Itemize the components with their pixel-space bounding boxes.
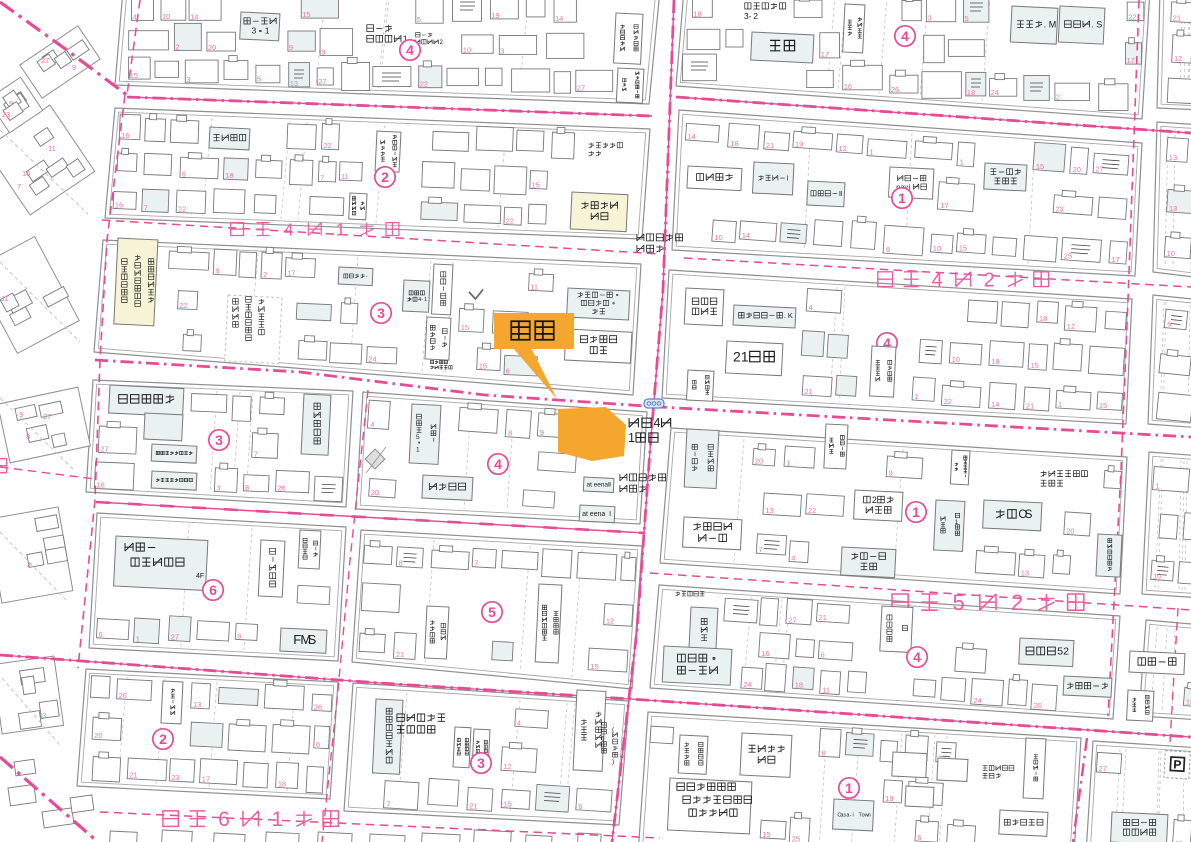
svg-text:22: 22 (420, 80, 428, 89)
svg-text:10: 10 (463, 45, 471, 54)
svg-text:20: 20 (208, 43, 216, 52)
svg-text:S: S (308, 632, 317, 647)
svg-text:16: 16 (761, 649, 769, 658)
svg-text:1: 1 (336, 219, 346, 239)
svg-text:18: 18 (278, 779, 286, 788)
svg-text:S: S (1025, 509, 1033, 521)
svg-text:24: 24 (991, 88, 999, 97)
svg-text:22: 22 (944, 397, 952, 406)
svg-text:15: 15 (762, 830, 770, 839)
svg-text:18: 18 (693, 9, 701, 18)
svg-text:1: 1 (898, 190, 906, 206)
svg-text:-: - (366, 274, 368, 280)
svg-text:27: 27 (1099, 764, 1107, 773)
svg-text:14: 14 (555, 14, 563, 23)
svg-text:9: 9 (289, 43, 293, 52)
svg-text:5: 5 (965, 14, 969, 23)
svg-text:2: 2 (1011, 590, 1023, 615)
svg-text:i: i (853, 812, 854, 818)
svg-text:27: 27 (43, 412, 51, 421)
svg-text:7: 7 (474, 559, 478, 568)
svg-text:3: 3 (252, 26, 257, 36)
svg-text:I: I (786, 175, 788, 182)
svg-text:22: 22 (178, 204, 186, 213)
svg-text:6: 6 (886, 245, 890, 254)
svg-text:21: 21 (819, 613, 827, 622)
svg-text:27: 27 (789, 615, 797, 624)
svg-text:7: 7 (144, 204, 148, 213)
svg-text:9: 9 (215, 266, 219, 275)
svg-text:20: 20 (1073, 165, 1081, 174)
svg-text:8: 8 (508, 429, 512, 438)
svg-text:1: 1 (416, 446, 420, 453)
svg-text:10: 10 (933, 244, 941, 253)
svg-text:23: 23 (1055, 204, 1063, 213)
svg-text:11: 11 (822, 685, 830, 694)
svg-text:1: 1 (741, 349, 749, 365)
svg-text:27: 27 (171, 632, 179, 641)
svg-text:22: 22 (808, 506, 816, 515)
svg-text:27: 27 (1095, 165, 1103, 174)
svg-text:12: 12 (839, 144, 847, 153)
svg-text:13: 13 (1169, 153, 1177, 162)
svg-text:10: 10 (1167, 249, 1175, 258)
svg-text:6: 6 (578, 802, 582, 811)
svg-text:27: 27 (318, 77, 326, 86)
svg-text:-: - (421, 297, 423, 303)
svg-text:17: 17 (940, 201, 948, 210)
svg-text:M: M (1049, 19, 1057, 29)
svg-text:P: P (1173, 757, 1182, 771)
svg-text:2: 2 (381, 169, 389, 185)
svg-text:3: 3 (215, 432, 223, 448)
svg-text:7: 7 (320, 173, 324, 182)
svg-text:6: 6 (237, 631, 241, 640)
svg-text:15: 15 (479, 362, 487, 371)
svg-text:1: 1 (912, 504, 920, 520)
svg-text:.: . (784, 311, 786, 320)
svg-text:-: - (749, 11, 752, 21)
svg-text:15: 15 (590, 662, 598, 671)
svg-text:16: 16 (97, 481, 105, 490)
svg-text:8: 8 (245, 483, 249, 492)
svg-text:4: 4 (517, 718, 521, 727)
svg-text:6: 6 (917, 833, 921, 842)
svg-text:1: 1 (786, 458, 790, 467)
svg-text:2: 2 (753, 11, 758, 21)
svg-text:13: 13 (1021, 568, 1029, 577)
svg-text:21: 21 (469, 802, 477, 811)
svg-text:6: 6 (209, 582, 217, 598)
svg-text:1: 1 (628, 431, 635, 445)
svg-text:13: 13 (193, 700, 201, 709)
svg-text:1: 1 (1058, 400, 1062, 409)
svg-text:21: 21 (1026, 402, 1034, 411)
svg-text:27: 27 (577, 83, 585, 92)
svg-text:.: . (1091, 19, 1094, 29)
svg-text:1: 1 (272, 808, 284, 831)
svg-text:18: 18 (967, 88, 975, 97)
svg-text:3: 3 (928, 14, 932, 23)
svg-text:20: 20 (1034, 701, 1042, 710)
svg-text:8: 8 (26, 432, 30, 441)
svg-text:1: 1 (845, 780, 853, 796)
svg-text:2: 2 (984, 269, 995, 291)
svg-text:6: 6 (218, 808, 230, 831)
svg-text:18: 18 (795, 680, 803, 689)
svg-text:3: 3 (216, 484, 220, 493)
svg-text:6: 6 (316, 740, 320, 749)
svg-text:1: 1 (136, 634, 140, 643)
svg-text:2: 2 (159, 731, 167, 747)
svg-text:15: 15 (461, 323, 469, 332)
svg-text:15: 15 (1031, 361, 1039, 370)
svg-text:4: 4 (406, 42, 414, 58)
svg-text:17: 17 (821, 50, 829, 59)
svg-text:.: . (1044, 19, 1047, 29)
svg-text:20: 20 (371, 488, 379, 497)
svg-text:1: 1 (869, 148, 873, 157)
svg-text:24: 24 (743, 680, 751, 689)
svg-text:22: 22 (324, 141, 332, 150)
svg-text:4: 4 (654, 416, 661, 430)
svg-text:12: 12 (1067, 322, 1075, 331)
svg-text:2: 2 (175, 42, 179, 51)
svg-text:1: 1 (960, 158, 964, 167)
svg-text:13: 13 (765, 506, 773, 515)
svg-text:27: 27 (41, 56, 49, 65)
svg-text:19: 19 (885, 794, 893, 803)
svg-text:12: 12 (1174, 54, 1182, 63)
svg-text:18: 18 (1039, 314, 1047, 323)
svg-text:7: 7 (17, 182, 21, 191)
svg-text:4F: 4F (196, 573, 204, 580)
svg-text:n: n (868, 812, 871, 818)
svg-text:7: 7 (759, 545, 763, 554)
svg-text:11: 11 (341, 172, 349, 181)
svg-text:14: 14 (688, 132, 696, 141)
svg-text:9: 9 (889, 469, 893, 478)
svg-text:4: 4 (494, 456, 502, 472)
svg-text:5: 5 (953, 590, 965, 615)
svg-text:9: 9 (321, 47, 325, 56)
svg-text:3: 3 (477, 755, 485, 771)
svg-text:9: 9 (72, 63, 76, 72)
svg-text:23: 23 (172, 773, 180, 782)
svg-text:15: 15 (532, 180, 540, 189)
svg-text:5: 5 (488, 604, 496, 620)
svg-text:-: - (850, 812, 852, 818)
svg-text:5: 5 (416, 434, 420, 441)
svg-text:2: 2 (263, 270, 267, 279)
svg-text:25: 25 (792, 834, 800, 842)
svg-text:19: 19 (491, 11, 499, 20)
svg-text:4: 4 (370, 420, 374, 429)
svg-text:10: 10 (952, 355, 960, 364)
svg-text:3: 3 (186, 75, 190, 84)
svg-text:1: 1 (265, 26, 270, 36)
svg-text:17: 17 (287, 268, 295, 277)
svg-text:21: 21 (1173, 14, 1181, 23)
svg-text:6: 6 (601, 736, 605, 743)
svg-text:10: 10 (22, 169, 30, 178)
svg-text:6: 6 (1167, 320, 1171, 329)
svg-text:10: 10 (1153, 571, 1161, 580)
svg-text:a: a (601, 511, 605, 518)
svg-text:4: 4 (913, 649, 921, 665)
svg-text:10: 10 (162, 12, 170, 21)
svg-text:17: 17 (202, 775, 210, 784)
svg-text:8: 8 (399, 559, 403, 568)
svg-text:21: 21 (804, 387, 812, 396)
svg-text:17: 17 (1112, 255, 1120, 264)
svg-text:t: t (590, 482, 592, 489)
svg-text:15: 15 (302, 10, 310, 19)
svg-text:18: 18 (991, 357, 999, 366)
svg-text:16: 16 (844, 82, 852, 91)
svg-text:26: 26 (119, 691, 127, 700)
svg-text:26: 26 (891, 85, 899, 94)
svg-text:4: 4 (932, 269, 943, 291)
svg-text:9: 9 (19, 410, 23, 419)
svg-text:14: 14 (742, 231, 750, 240)
svg-text:20: 20 (94, 731, 102, 740)
svg-text:27: 27 (100, 445, 108, 454)
svg-text:15: 15 (959, 244, 967, 253)
svg-text:4: 4 (901, 28, 909, 44)
svg-text:14: 14 (190, 12, 198, 21)
svg-text:21: 21 (396, 650, 404, 659)
svg-text:24: 24 (368, 355, 376, 364)
svg-text:Ⅱ: Ⅱ (608, 482, 611, 489)
svg-text:I: I (609, 511, 611, 518)
svg-text:1: 1 (424, 297, 427, 303)
svg-text:3: 3 (377, 305, 385, 321)
svg-text:12: 12 (606, 617, 614, 626)
svg-text:2: 2 (1063, 646, 1069, 658)
svg-text:Ⅱ: Ⅱ (839, 191, 842, 198)
svg-text:3: 3 (500, 46, 504, 55)
svg-text:5: 5 (417, 15, 421, 24)
svg-text:5: 5 (257, 75, 261, 84)
svg-text:11: 11 (48, 144, 56, 153)
svg-text:4: 4 (133, 12, 137, 21)
svg-text:19: 19 (1186, 698, 1191, 707)
svg-text:15: 15 (1099, 401, 1107, 410)
svg-text:23: 23 (2, 110, 10, 119)
svg-text:20: 20 (1066, 526, 1074, 535)
svg-text:12: 12 (503, 762, 511, 771)
svg-text:10: 10 (714, 233, 722, 242)
svg-text:19: 19 (795, 139, 803, 148)
svg-text:24: 24 (973, 696, 981, 705)
svg-text:8: 8 (822, 748, 826, 757)
svg-text:18: 18 (225, 171, 233, 180)
svg-text:6: 6 (182, 169, 186, 178)
svg-text:21: 21 (129, 771, 137, 780)
svg-text:22: 22 (179, 301, 187, 310)
svg-text:S: S (1096, 19, 1102, 29)
svg-text:20: 20 (755, 457, 763, 466)
svg-text:1: 1 (1155, 482, 1159, 491)
svg-text:6: 6 (99, 630, 103, 639)
svg-text:4: 4 (809, 303, 813, 312)
svg-text:22: 22 (1128, 13, 1136, 22)
svg-text:26: 26 (314, 702, 322, 711)
svg-text:7: 7 (254, 449, 258, 458)
svg-text:17: 17 (1127, 56, 1135, 65)
svg-text:16: 16 (121, 131, 129, 140)
svg-text:6: 6 (506, 366, 510, 375)
svg-text:4: 4 (791, 554, 795, 563)
svg-text:22: 22 (506, 217, 514, 226)
svg-text:K: K (788, 311, 793, 320)
svg-text:4: 4 (284, 219, 294, 239)
svg-text:14: 14 (991, 400, 999, 409)
svg-text:15: 15 (503, 800, 511, 809)
svg-text:15: 15 (1036, 162, 1044, 171)
svg-text:2: 2 (872, 495, 877, 505)
svg-text:6: 6 (821, 651, 825, 660)
svg-text:): ) (612, 759, 614, 766)
svg-text:13: 13 (290, 79, 298, 88)
svg-text:t: t (586, 511, 588, 518)
svg-text:9: 9 (540, 428, 544, 437)
svg-text:7: 7 (386, 800, 390, 809)
svg-text:26: 26 (277, 483, 285, 492)
svg-text:18: 18 (730, 139, 738, 148)
svg-text:16: 16 (115, 200, 123, 209)
svg-text:1: 1 (915, 392, 919, 401)
svg-text:11: 11 (1, 294, 9, 303)
svg-text:21: 21 (766, 141, 774, 150)
svg-text:2: 2 (1056, 93, 1060, 102)
svg-text:11: 11 (530, 282, 538, 291)
svg-text:13: 13 (1169, 204, 1177, 213)
svg-text:25: 25 (1064, 252, 1072, 261)
